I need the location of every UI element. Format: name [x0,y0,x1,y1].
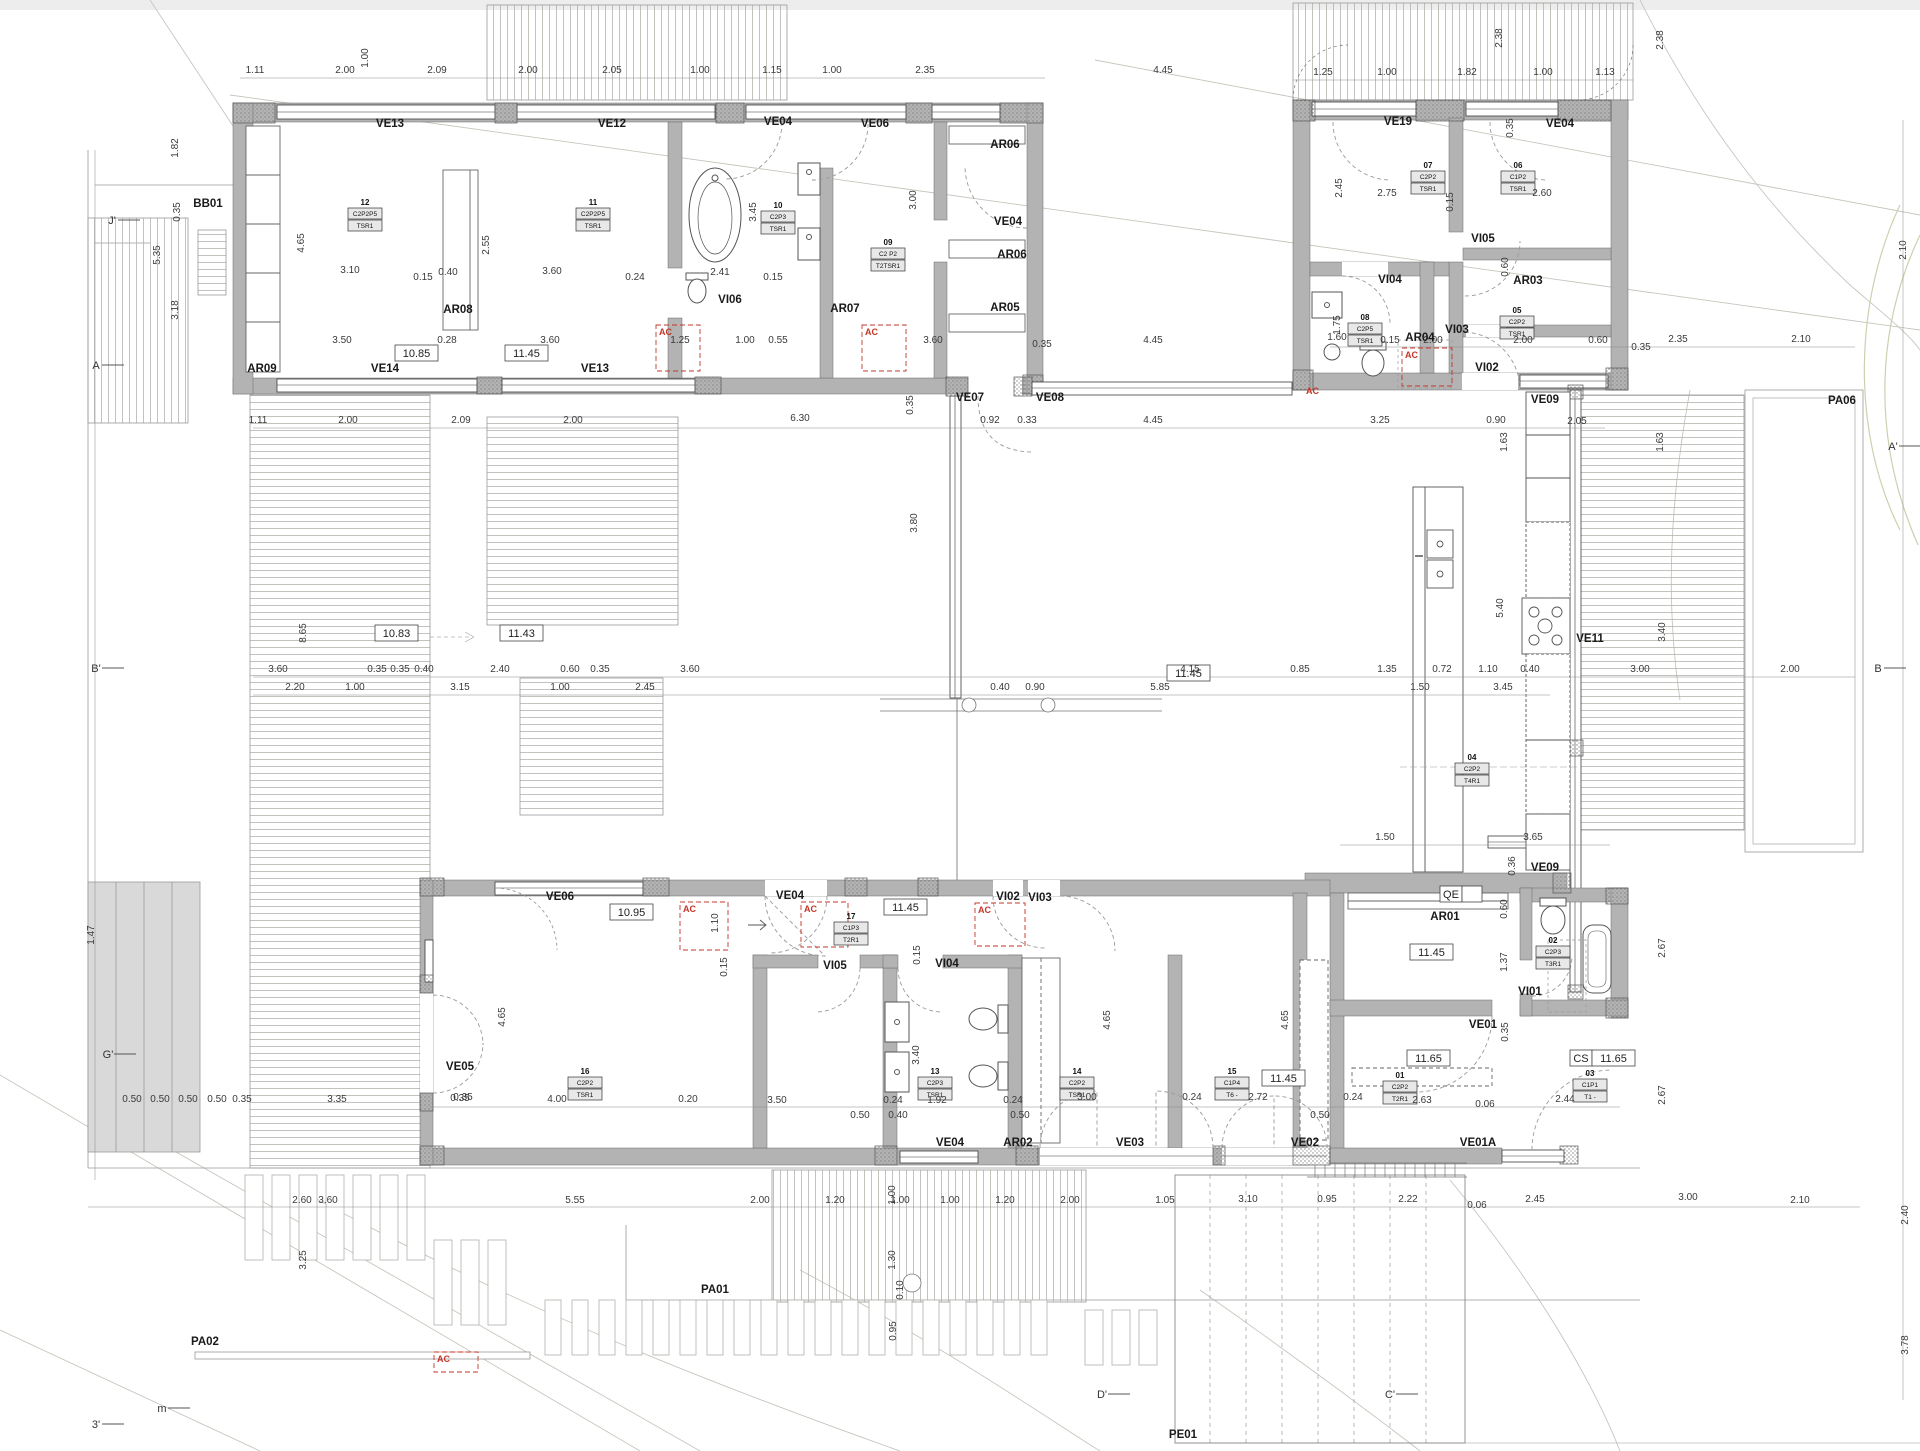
area-value-box [1462,886,1482,902]
dimension-label: 2.09 [451,415,471,426]
element-code-ve04: VE04 [994,216,1023,228]
ac-label: AC [1306,386,1319,396]
dimension-label: 3.60 [318,1195,338,1206]
dimension-label: 3.00 [908,190,919,210]
dimension-label: 3.15 [450,682,470,693]
element-code-ve14: VE14 [371,363,400,375]
dimension-label: 1.35 [1377,664,1397,675]
room-tag-line: TSR1 [1510,186,1527,193]
dimension-label: 0.90 [1025,682,1045,693]
dimension-label: 2.38 [1494,28,1505,48]
dimension-label: 3.10 [1238,1194,1258,1205]
dimension-label: 0.95 [888,1321,899,1341]
room-number: 06 [1514,161,1523,170]
dimension-label: 0.50 [150,1094,170,1105]
dimension-label: 2.40 [1900,1205,1911,1225]
room-tag-line: TSR1 [1420,186,1437,193]
dimension-label: 3.65 [1523,832,1543,843]
section-marker-label: 3' [92,1419,100,1431]
dimension-label: 0.35 [367,664,387,675]
dimension-label: 4.65 [1280,1010,1291,1030]
dimension-label: 0.35 [1032,339,1052,350]
dimension-label: 2.00 [518,65,538,76]
dimension-label: 3.25 [1370,415,1390,426]
dimension-label: 0.50 [178,1094,198,1105]
dimension-label: 2.35 [1668,334,1688,345]
element-code-ar06: AR06 [990,139,1019,151]
room-number: 07 [1424,161,1433,170]
dimension-label: 0.10 [895,1280,906,1300]
area-value: 11.45 [892,902,919,914]
ac-label: AC [865,327,878,337]
dimension-label: 0.60 [1500,257,1511,277]
element-code-pa02: PA02 [191,1336,219,1348]
dimension-label: 1.50 [1410,682,1430,693]
dimension-label: 1.20 [825,1195,845,1206]
room-tag-line: C2P5 [1357,326,1374,333]
room-tag-line: C2P2 [577,1080,594,1087]
element-code-ve01: VE01 [1469,1019,1498,1031]
dimension-label: 1.37 [1499,952,1510,972]
room-tag-line: T2R1 [1392,1096,1408,1103]
room-tag-line: TSR1 [1357,338,1374,345]
room-number: 13 [931,1067,940,1076]
dimension-label: 0.50 [207,1094,227,1105]
room-tag-line: T3R1 [1545,961,1561,968]
dimension-label: 3.60 [923,335,943,346]
grill-unit [198,230,226,295]
dimension-label: 2.44 [1555,1094,1575,1105]
room-tag-line: T2R1 [843,937,859,944]
element-code-ve11: VE11 [1576,633,1604,645]
dimension-label: 2.45 [1334,178,1345,198]
dimension-label: 1.15 [762,65,782,76]
dimension-label: 1.10 [710,913,721,933]
dimension-label: 0.06 [1467,1200,1487,1211]
dimension-label: 0.55 [768,335,788,346]
dimension-label: 0.35 [1505,118,1516,138]
room-tag-line: C2P2 [1069,1080,1086,1087]
room-tag-line: C1P1 [1582,1082,1599,1089]
element-code-ve04: VE04 [776,890,805,902]
dimension-label: 2.09 [427,65,447,76]
dimension-label: 0.40 [888,1110,908,1121]
dimension-label: 0.60 [1499,899,1510,919]
room-number: 10 [774,201,783,210]
dimension-label: 1.82 [1457,67,1477,78]
element-code-ve06: VE06 [546,891,574,903]
dimension-label: 2.75 [1377,188,1397,199]
dimension-label: 2.00 [1780,664,1800,675]
element-code-ar06: AR06 [997,249,1026,261]
toilet-bowl [1541,906,1565,934]
dimension-label: 1.00 [735,335,755,346]
dimension-label: 0.50 [122,1094,142,1105]
section-marker-label: D' [1097,1389,1107,1401]
dimension-label: 4.15 [1180,664,1200,675]
dimension-label: 1.13 [1595,67,1615,78]
dimension-label: 1.60 [1327,332,1347,343]
dimension-label: 0.24 [883,1095,903,1106]
dimension-label: 2.60 [292,1195,312,1206]
room-tag-line: TSR1 [357,223,374,230]
dimension-label: 3.10 [340,265,360,276]
dimension-label: 1.47 [86,925,97,945]
element-code-vi03: VI03 [1028,892,1052,904]
dimension-label: 0.35 [1500,1022,1511,1042]
dimension-label: 3.60 [268,664,288,675]
dimension-label: 2.35 [915,65,935,76]
value-box-prefix-text: CS [1573,1053,1588,1065]
dimension-label: 3.35 [327,1094,347,1105]
ac-label: AC [804,904,817,914]
dimension-label: 0.35 [1631,342,1651,353]
element-code-ve04: VE04 [764,116,793,128]
room-tag-line: T2TSR1 [876,263,901,270]
dimension-label: 1.50 [1375,832,1395,843]
element-code-ve03: VE03 [1116,1137,1144,1149]
element-code-vi04: VI04 [935,958,959,970]
room-tag-line: C2P3 [1545,949,1562,956]
dimension-label: 1.00 [822,65,842,76]
room-tag-line: C2P2 [1420,174,1437,181]
dimension-label: 2.41 [710,267,730,278]
dimension-label: 2.05 [602,65,622,76]
dimension-label: 1.00 [887,1185,898,1205]
courtyard-deck-small [520,678,663,815]
dimension-label: 2.00 [335,65,355,76]
dimension-label: 0.50 [1010,1110,1030,1121]
dimension-label: 0.50 [850,1110,870,1121]
room-number: 15 [1228,1067,1237,1076]
area-value: 10.85 [403,348,431,360]
dimension-label: 0.15 [912,945,923,965]
room-tag-line: C2P3 [927,1080,944,1087]
room-tag-line: T6 - [1226,1092,1238,1099]
room-tag-line: C2 P2 [879,251,897,258]
dimension-label: 2.00 [563,415,583,426]
value-box-prefix-text: QE [1443,889,1459,901]
room-tag-line: C1P3 [843,925,860,932]
dimension-label: 1.00 [1533,67,1553,78]
dimension-label: 2.40 [490,664,510,675]
element-code-vi03: VI03 [1445,324,1469,336]
element-code-ve13: VE13 [581,363,609,375]
toilet-bowl [688,279,706,303]
room-tag-line: C1P4 [1224,1080,1241,1087]
area-value: 11.45 [1270,1073,1297,1085]
element-code-ar01: AR01 [1430,911,1460,923]
room-number: 04 [1468,753,1477,762]
floor-plan-page: ACACACACACACACAC 10.8511.4510.8311.4310.… [0,0,1920,1451]
dimension-label: 5.40 [1495,598,1506,618]
stove [1522,598,1570,654]
dimension-label: 0.15 [1445,192,1456,212]
dimension-label: 0.60 [560,664,580,675]
dimension-label: 0.15 [413,272,433,283]
dimension-label: 2.20 [285,682,305,693]
ac-label: AC [683,904,696,914]
dimension-label: 4.65 [1102,1010,1113,1030]
dimension-label: 3.00 [1077,1092,1097,1103]
dimension-label: 1.63 [1655,432,1666,452]
dimension-label: 3.00 [1678,1192,1698,1203]
section-marker-label: B [1874,663,1881,675]
top-deck-right [1293,3,1633,100]
room-tag-line: T4R1 [1464,778,1480,785]
dimension-label: 5.85 [1150,682,1170,693]
ac-label: AC [437,1354,450,1364]
dimension-label: 3.78 [1900,1335,1911,1355]
dimension-label: 3.50 [332,335,352,346]
south-deck [772,1170,1086,1302]
dimension-label: 0.35 [232,1094,252,1105]
dimension-label: 1.30 [887,1250,898,1270]
dimension-label: 0.28 [437,335,457,346]
dimension-label: 0.35 [590,664,610,675]
area-value: 11.45 [1418,947,1445,959]
area-value: 11.43 [508,628,535,640]
dimension-label: 1.82 [170,138,181,158]
dimension-label: 2.38 [1655,30,1666,50]
dimension-label: 0.24 [1343,1092,1363,1103]
dimension-label: 0.36 [1507,856,1518,876]
toilet-tank [998,1005,1008,1033]
room-tag-line: C2P2 [1464,766,1481,773]
dimension-label: 0.40 [414,664,434,675]
element-code-ve05: VE05 [446,1061,475,1073]
dimension-label: 2.45 [635,682,655,693]
dimension-label: 0.90 [1486,415,1506,426]
toilet-tank [998,1062,1008,1090]
ac-label: AC [1405,350,1418,360]
room-number: 03 [1586,1069,1595,1078]
element-code-pa06: PA06 [1828,395,1856,407]
room-tag-line: C2P3 [770,214,787,221]
dimension-label: 1.63 [1499,432,1510,452]
element-code-ve09: VE09 [1531,862,1559,874]
room-number: 05 [1513,306,1522,315]
top-deck-left [487,5,787,100]
sink [798,228,820,260]
area-value: 11.65 [1415,1053,1442,1065]
dimension-label: 2.10 [1898,240,1909,260]
dimension-label: 0.06 [1475,1099,1495,1110]
dimension-label: 2.63 [1412,1095,1432,1106]
dimension-label: 1.00 [690,65,710,76]
dimension-label: 1.05 [1155,1195,1175,1206]
dimension-label: 4.65 [296,233,307,253]
section-marker-label: G' [103,1049,114,1061]
dimension-label: 0.95 [1317,1194,1337,1205]
dimension-label: 0.15 [763,272,783,283]
element-code-ve04: VE04 [936,1137,965,1149]
element-code-pa01: PA01 [701,1284,730,1296]
room-number: 08 [1361,313,1370,322]
dimension-label: 3.25 [298,1250,309,1270]
dimension-label: 1.00 [1377,67,1397,78]
dimension-label: 3.50 [767,1095,787,1106]
room-number: 09 [884,238,893,247]
dimension-label: 1.20 [995,1195,1015,1206]
floor-plan-drawing: ACACACACACACACAC 10.8511.4510.8311.4310.… [0,0,1920,1451]
dimension-label: 0.35 [390,664,410,675]
element-code-ve02: VE02 [1291,1137,1319,1149]
element-code-ar05: AR05 [990,302,1020,314]
element-code-pe01: PE01 [1169,1429,1198,1441]
section-marker-label: J' [108,215,116,227]
dimension-label: 0.72 [1432,664,1452,675]
dimension-label: 2.72 [1248,1092,1268,1103]
room-number: 01 [1396,1071,1405,1080]
courtyard-deck-left [250,395,430,1168]
element-code-vi02: VI02 [996,891,1020,903]
dimension-label: 1.25 [1313,67,1333,78]
dimension-label: 3.45 [1493,682,1513,693]
dimension-label: 0.15 [719,957,730,977]
dimension-label: 2.67 [1657,1085,1668,1105]
room-number: 11 [589,198,598,207]
dimension-label: 2.60 [1532,188,1552,199]
dimension-label: 2.00 [338,415,358,426]
dimension-label: 3.45 [748,202,759,222]
dimension-label: 2.67 [1657,938,1668,958]
dimension-label: 2.55 [481,235,492,255]
dimension-label: 1.92 [927,1095,947,1106]
dimension-label: 2.00 [1060,1195,1080,1206]
element-code-ar02: AR02 [1003,1137,1032,1149]
element-code-ar08: AR08 [443,304,473,316]
dimension-label: 2.00 [750,1195,770,1206]
area-value: 11.65 [1600,1053,1627,1065]
dimension-label: 5.35 [152,245,163,265]
dimension-label: 3.00 [1630,664,1650,675]
dimension-label: 2.22 [1398,1194,1418,1205]
element-code-ve07: VE07 [956,392,984,404]
element-code-vi06: VI06 [718,294,742,306]
element-code-ve08: VE08 [1036,392,1065,404]
dimension-label: 0.92 [980,415,1000,426]
room-tag-line: C1P2 [1510,174,1527,181]
section-marker-label: A' [1888,441,1897,453]
dimension-label: 3.18 [170,300,181,320]
dimension-label: 3.80 [909,513,920,533]
element-code-ar04: AR04 [1405,332,1435,344]
dimension-label: 0.50 [1310,1110,1330,1121]
room-tag-line: TSR1 [770,226,787,233]
room-number: 17 [847,912,856,921]
room-tag-line: C2P2P5 [353,211,378,218]
element-code-bb01: BB01 [193,198,223,210]
dimension-label: 4.00 [547,1094,567,1105]
dimension-label: 4.45 [1153,65,1173,76]
dimension-label: 2.10 [1790,1195,1810,1206]
dimension-label: 2.00 [1513,335,1533,346]
element-code-ve13: VE13 [376,118,404,130]
room-tag-line: C2P2P5 [581,211,606,218]
dimension-label: 0.24 [1182,1092,1202,1103]
area-value: 10.95 [618,907,646,919]
element-code-vi05: VI05 [1471,233,1495,245]
dimension-label: 8.65 [298,623,309,643]
element-code-ve19: VE19 [1384,116,1412,128]
section-marker-label: B' [91,663,100,675]
dimension-label: 0.40 [990,682,1010,693]
element-code-ve09: VE09 [1531,394,1559,406]
ac-label: AC [978,905,991,915]
sink [798,163,820,195]
dimension-label: 1.11 [249,415,268,426]
dimension-label: 0.60 [1588,335,1608,346]
section-marker-label: C' [1385,1389,1395,1401]
dimension-label: 1.00 [360,48,371,68]
dimension-label: 0.20 [678,1094,698,1105]
dimension-label: 0.15 [1380,335,1400,346]
dimension-label: 0.40 [438,267,458,278]
east-deck [1578,395,1744,830]
dimension-label: 1.00 [345,682,365,693]
dimension-label: 3.40 [911,1045,922,1065]
element-code-ve04: VE04 [1546,118,1575,130]
element-code-ar03: AR03 [1513,275,1542,287]
element-code-vi02: VI02 [1475,362,1499,374]
dimension-label: 0.24 [1003,1095,1023,1106]
dimension-label: 3.60 [680,664,700,675]
toilet-bowl [1362,350,1384,376]
element-code-ve01a: VE01A [1460,1137,1496,1149]
east-patio [1745,390,1863,852]
courtyard-deck-mid [487,417,678,625]
room-number: 16 [581,1067,590,1076]
dimension-label: 5.55 [565,1195,585,1206]
dimension-label: 1.10 [1478,664,1498,675]
dimension-label: 3.60 [542,266,562,277]
dimension-label: 0.24 [625,272,645,283]
element-code-ve06: VE06 [861,118,889,130]
element-code-ve12: VE12 [598,118,626,130]
dimension-label: 2.45 [1525,1194,1545,1205]
room-tag-line: TSR1 [585,223,602,230]
toilet-bowl [969,1008,997,1030]
room-number: 02 [1549,936,1558,945]
area-value: 10.83 [383,628,411,640]
dimension-label: 1.00 [550,682,570,693]
dimension-label: 4.65 [497,1007,508,1027]
bench-bar [195,1352,530,1359]
area-value: 11.45 [513,348,540,360]
element-code-vi01: VI01 [1518,986,1542,998]
element-code-vi05: VI05 [823,960,847,972]
toilet-tank [1540,898,1566,906]
dimension-label: 0.40 [1520,664,1540,675]
dimension-label: 4.45 [1143,415,1163,426]
room-tag-line: T1 - [1584,1094,1596,1101]
room-number: 14 [1073,1067,1082,1076]
element-code-ar09: AR09 [247,363,276,375]
section-marker-label: m [157,1403,166,1415]
room-tag-line: C2P2 [1509,319,1526,326]
dimension-label: 1.25 [670,335,690,346]
section-marker-label: A [92,360,100,372]
dimension-label: 1.11 [246,65,265,76]
dimension-label: 3.40 [1657,622,1668,642]
dimension-label: 6.30 [790,413,810,424]
room-tag-line: TSR1 [577,1092,594,1099]
room-tag-line: C2P2 [1392,1084,1409,1091]
dimension-label: 2.10 [1791,334,1811,345]
dimension-label: 2.05 [1567,416,1587,427]
dimension-label: 0.35 [450,1093,470,1104]
